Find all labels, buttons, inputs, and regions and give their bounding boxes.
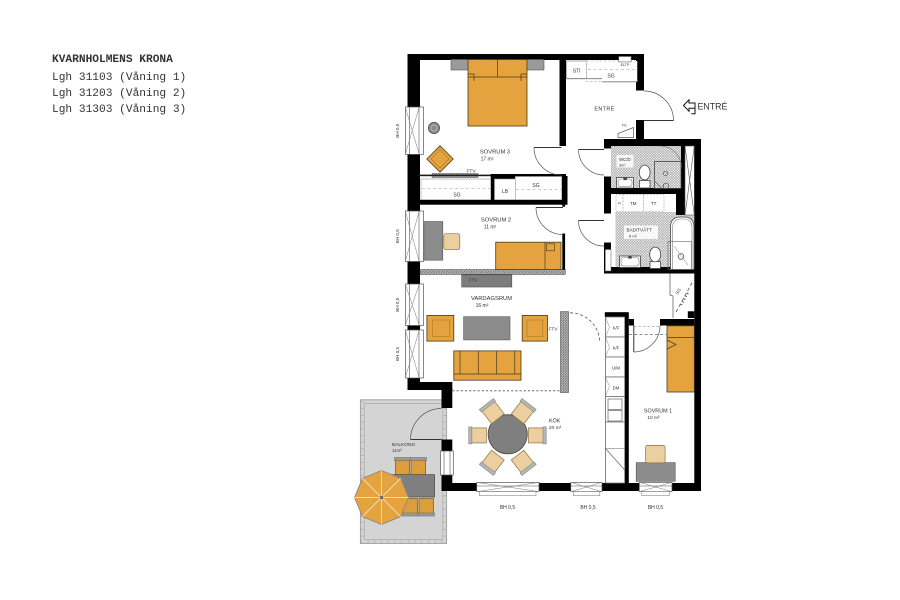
svg-text:BAD/TVÄTT: BAD/TVÄTT	[627, 227, 652, 233]
svg-text:SG: SG	[532, 183, 539, 189]
svg-text:WC/D: WC/D	[619, 157, 631, 162]
svg-text:SG: SG	[453, 193, 460, 199]
svg-text:BH 0,5: BH 0,5	[395, 123, 400, 137]
svg-text:Lgh 31203 (Våning 2): Lgh 31203 (Våning 2)	[52, 87, 186, 100]
svg-text:U/M: U/M	[612, 366, 620, 371]
svg-text:BH 0,5: BH 0,5	[395, 229, 400, 243]
svg-text:17 m²: 17 m²	[481, 157, 494, 163]
svg-text:DM: DM	[613, 386, 620, 391]
svg-text:16 m²: 16 m²	[476, 303, 489, 309]
svg-text:11 m²: 11 m²	[484, 225, 497, 231]
svg-text:SOVRUM 3: SOVRUM 3	[480, 150, 510, 156]
svg-text:10 m²: 10 m²	[647, 415, 660, 421]
svg-text:ENTRÉ: ENTRÉ	[698, 102, 728, 112]
svg-text:TT: TT	[651, 201, 657, 206]
svg-text:BH 0,5: BH 0,5	[500, 505, 516, 511]
svg-text:KÖK: KÖK	[549, 418, 561, 425]
svg-text:FS: FS	[622, 124, 627, 128]
svg-text:FTV: FTV	[548, 327, 558, 333]
svg-text:TM: TM	[630, 201, 637, 206]
svg-text:ELTP: ELTP	[621, 63, 630, 67]
svg-text:K/F: K/F	[613, 326, 620, 331]
svg-text:20 m²: 20 m²	[549, 425, 562, 431]
svg-text:K/F: K/F	[613, 346, 620, 351]
svg-text:BH 0,5: BH 0,5	[395, 347, 400, 361]
svg-text:BH 0,5: BH 0,5	[648, 505, 664, 511]
svg-text:SOVRUM 2: SOVRUM 2	[481, 218, 511, 224]
svg-text:STI: STI	[573, 69, 581, 75]
svg-text:FTV: FTV	[469, 278, 477, 283]
svg-text:ENTRÉ: ENTRÉ	[594, 106, 614, 113]
svg-text:6 m²: 6 m²	[629, 234, 638, 239]
svg-text:VARDAGSRUM: VARDAGSRUM	[471, 296, 512, 302]
svg-text:BH 0,5: BH 0,5	[395, 297, 400, 311]
svg-text:3m²: 3m²	[619, 164, 626, 168]
svg-text:LB: LB	[502, 189, 509, 195]
svg-text:KVARNHOLMENS KRONA: KVARNHOLMENS KRONA	[52, 54, 173, 66]
svg-text:BH 0,5: BH 0,5	[580, 505, 596, 511]
svg-text:Lgh 31103 (Våning 1): Lgh 31103 (Våning 1)	[52, 71, 186, 84]
svg-text:SOVRUM 1: SOVRUM 1	[644, 409, 672, 415]
svg-text:FI: FI	[618, 202, 621, 206]
svg-text:Lgh 31303 (Våning 3): Lgh 31303 (Våning 3)	[52, 103, 186, 116]
svg-text:FTV: FTV	[466, 169, 476, 175]
svg-text:11m²: 11m²	[392, 448, 402, 453]
svg-text:SG: SG	[607, 74, 614, 80]
